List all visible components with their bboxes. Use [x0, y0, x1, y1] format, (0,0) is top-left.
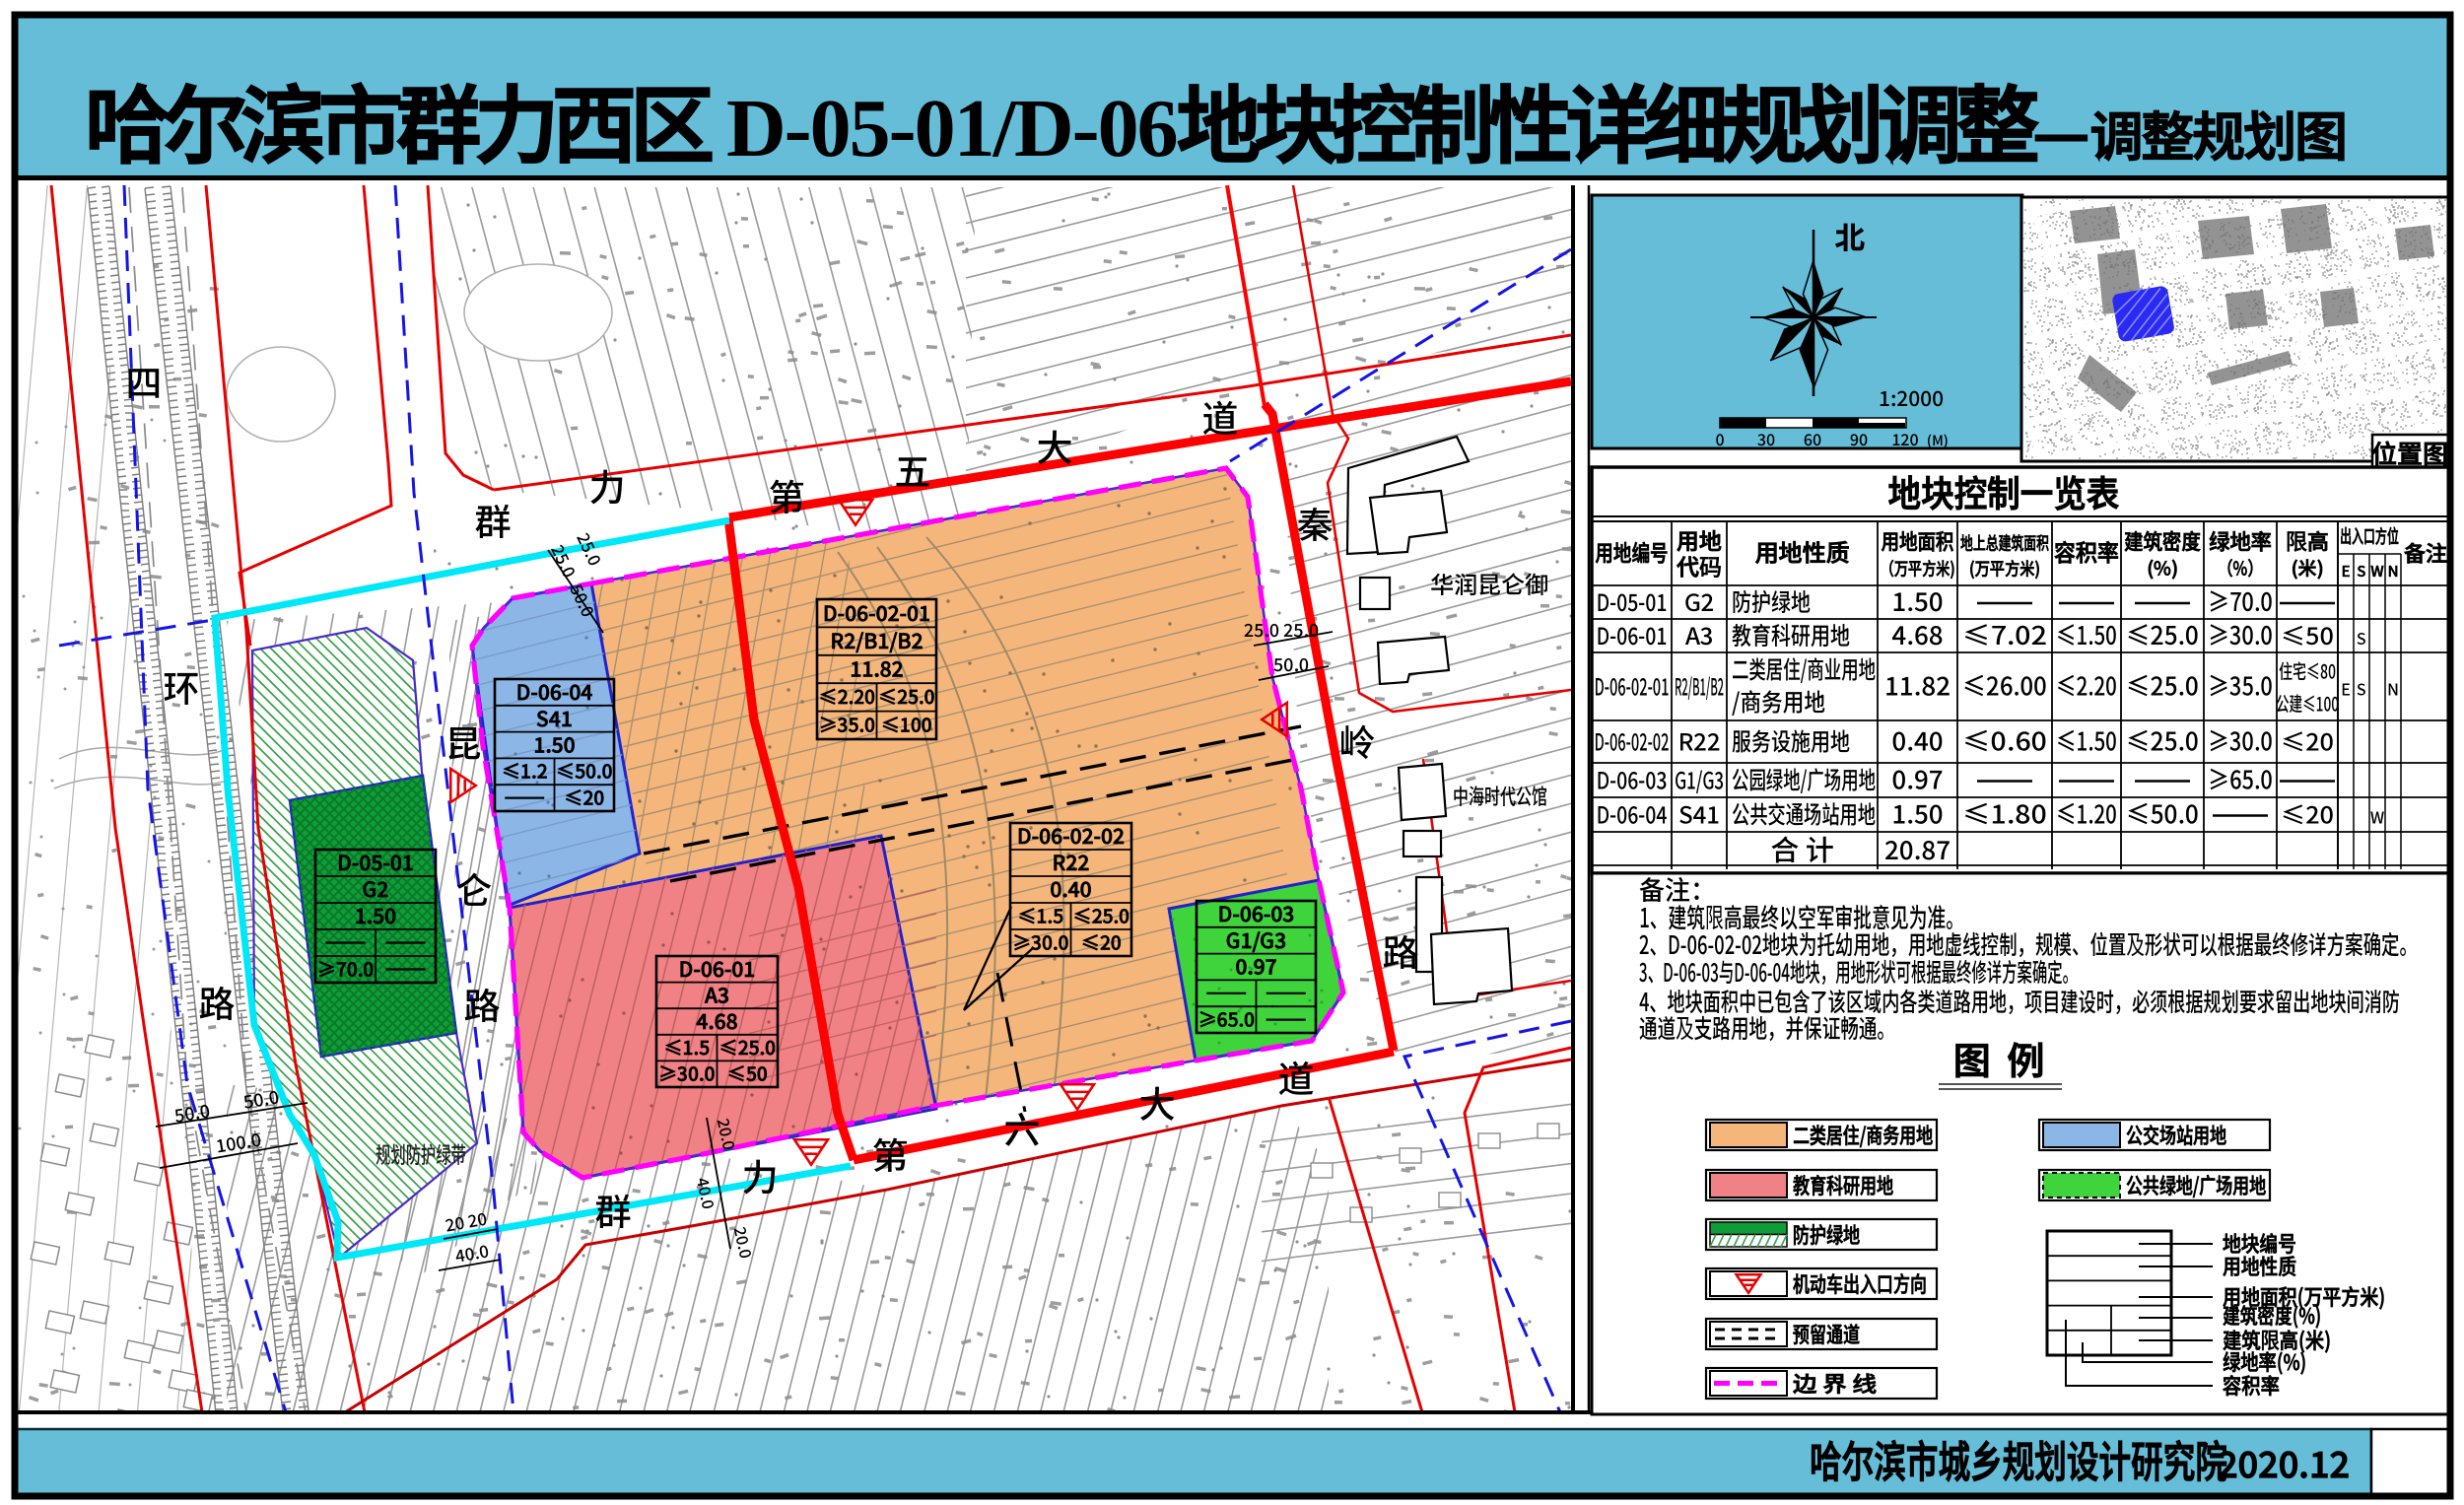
svg-text:0.40: 0.40	[1050, 874, 1091, 904]
svg-text:D-05-01: D-05-01	[337, 848, 414, 877]
svg-text:4.68: 4.68	[696, 1006, 737, 1036]
svg-text:≥35.0: ≥35.0	[819, 712, 875, 738]
svg-text:华润昆仑御: 华润昆仑御	[1430, 566, 1548, 600]
svg-text:1.50: 1.50	[355, 901, 396, 930]
svg-text:岭: 岭	[1339, 714, 1376, 767]
svg-text:仑: 仑	[456, 861, 493, 915]
svg-text:≤50.0: ≤50.0	[556, 758, 612, 785]
svg-text:≤100: ≤100	[881, 712, 932, 738]
svg-text:六: 六	[1004, 1101, 1041, 1154]
svg-text:北: 北	[1834, 214, 1865, 257]
svg-text:1:2000: 1:2000	[1879, 383, 1944, 413]
svg-text:≤20: ≤20	[564, 784, 604, 810]
svg-text:R22: R22	[1053, 848, 1090, 877]
svg-text:道: 道	[1278, 1050, 1315, 1103]
svg-text:G2: G2	[363, 874, 389, 904]
svg-text:≤25.0: ≤25.0	[1073, 902, 1129, 928]
svg-text:规划防护绿带: 规划防护绿带	[376, 1136, 466, 1170]
svg-text:G1/G3: G1/G3	[1226, 925, 1286, 955]
svg-text:群: 群	[595, 1183, 632, 1236]
svg-text:D-06-03: D-06-03	[1218, 899, 1295, 928]
svg-text:D-06-01: D-06-01	[679, 954, 756, 984]
svg-text:大: 大	[1139, 1075, 1176, 1129]
svg-text:力: 力	[589, 458, 626, 512]
svg-text:群: 群	[475, 493, 512, 546]
svg-text:120: 120	[1891, 427, 1918, 450]
svg-text:S41: S41	[536, 704, 573, 733]
svg-text:1.50: 1.50	[533, 730, 575, 760]
svg-text:0: 0	[1715, 427, 1724, 450]
svg-text:R2/B1/B2: R2/B1/B2	[830, 626, 923, 655]
svg-text:60: 60	[1804, 427, 1821, 450]
svg-text:路: 路	[464, 977, 501, 1030]
svg-text:四: 四	[126, 354, 163, 407]
svg-text:≤1.5: ≤1.5	[1018, 902, 1063, 928]
svg-text:≤25.0: ≤25.0	[878, 683, 934, 710]
svg-text:A3: A3	[704, 980, 729, 1009]
svg-text:路: 路	[199, 975, 236, 1028]
svg-text:路: 路	[1383, 924, 1419, 977]
svg-text:0.97: 0.97	[1235, 952, 1276, 982]
svg-text:(M): (M)	[1927, 431, 1949, 450]
svg-text:50.0: 50.0	[1273, 651, 1309, 677]
svg-text:≥30.0: ≥30.0	[1012, 928, 1068, 955]
svg-text:五: 五	[895, 443, 931, 496]
svg-text:力: 力	[742, 1148, 779, 1201]
svg-text:≤1.5: ≤1.5	[664, 1034, 710, 1060]
svg-text:秦: 秦	[1297, 496, 1334, 549]
svg-text:≤25.0: ≤25.0	[719, 1034, 776, 1060]
svg-text:≤50: ≤50	[727, 1060, 768, 1087]
svg-text:25.0 25.0: 25.0 25.0	[1244, 617, 1319, 643]
svg-text:90: 90	[1850, 427, 1868, 450]
svg-text:昆: 昆	[445, 715, 482, 768]
svg-text:第: 第	[872, 1127, 909, 1180]
svg-text:D-06-02-01: D-06-02-01	[823, 598, 930, 628]
svg-text:道: 道	[1202, 389, 1239, 443]
svg-text:D-06-04: D-06-04	[516, 677, 593, 707]
svg-text:≥30.0: ≥30.0	[658, 1060, 715, 1087]
svg-text:≥70.0: ≥70.0	[317, 955, 374, 982]
svg-text:≤1.2: ≤1.2	[502, 758, 547, 785]
svg-text:≤20: ≤20	[1081, 928, 1122, 955]
svg-text:≥65.0: ≥65.0	[1198, 1005, 1255, 1032]
svg-text:D-06-02-02: D-06-02-02	[1017, 821, 1125, 851]
svg-text:第: 第	[769, 468, 805, 521]
svg-text:11.82: 11.82	[850, 654, 903, 684]
svg-text:30: 30	[1757, 427, 1775, 450]
svg-text:中海时代公馆: 中海时代公馆	[1453, 780, 1547, 811]
svg-text:≤2.20: ≤2.20	[819, 683, 875, 710]
svg-text:环: 环	[164, 659, 200, 713]
svg-text:大: 大	[1037, 419, 1073, 472]
